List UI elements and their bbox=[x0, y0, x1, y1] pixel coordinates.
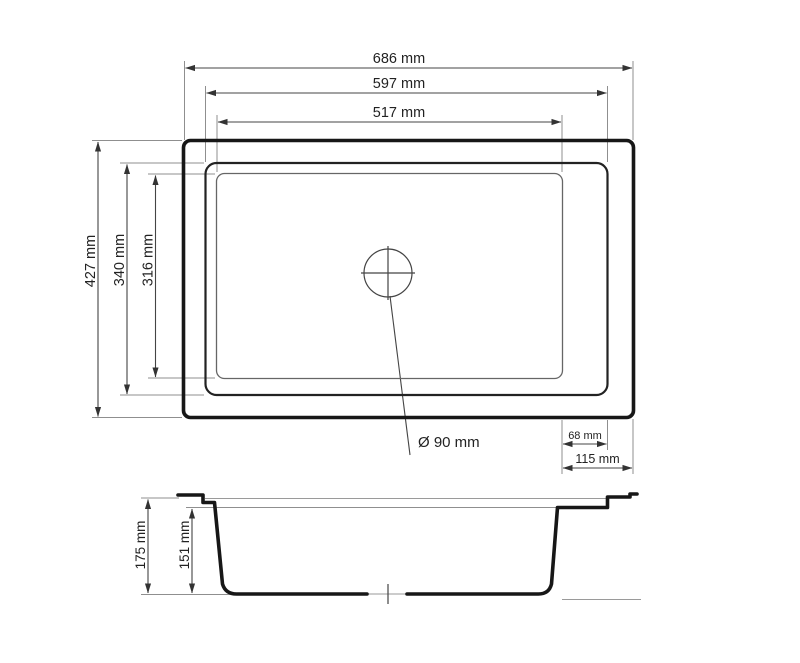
dim-label-depth-outer: 427 mm bbox=[83, 235, 99, 287]
dim-label-depth-bowl: 316 mm bbox=[141, 234, 157, 286]
dim-label-height-outer: 175 mm bbox=[133, 521, 148, 570]
dim-label-width-bowl: 517 mm bbox=[373, 105, 425, 121]
dim-label-drain-diameter: Ø 90 mm bbox=[418, 434, 480, 451]
dim-label-width-outer: 686 mm bbox=[373, 51, 425, 67]
technical-drawing-svg: 686 mm 597 mm 517 mm 427 mm 340 mm 316 m… bbox=[0, 0, 800, 658]
sink-outer-edge bbox=[184, 141, 634, 418]
front-profile-right bbox=[407, 494, 637, 594]
dim-label-ledge-small: 68 mm bbox=[568, 430, 602, 442]
drain-leader-line bbox=[390, 296, 410, 455]
sink-bowl-rim bbox=[206, 163, 608, 395]
dim-label-width-rim: 597 mm bbox=[373, 76, 425, 92]
sink-bowl-bottom-edge bbox=[217, 174, 563, 379]
dim-label-height-bowl: 151 mm bbox=[177, 521, 192, 570]
front-profile-left bbox=[178, 495, 367, 594]
sink-technical-drawing: 686 mm 597 mm 517 mm 427 mm 340 mm 316 m… bbox=[0, 0, 800, 658]
dim-label-ledge-large: 115 mm bbox=[575, 452, 619, 466]
dim-label-depth-rim: 340 mm bbox=[112, 234, 128, 286]
